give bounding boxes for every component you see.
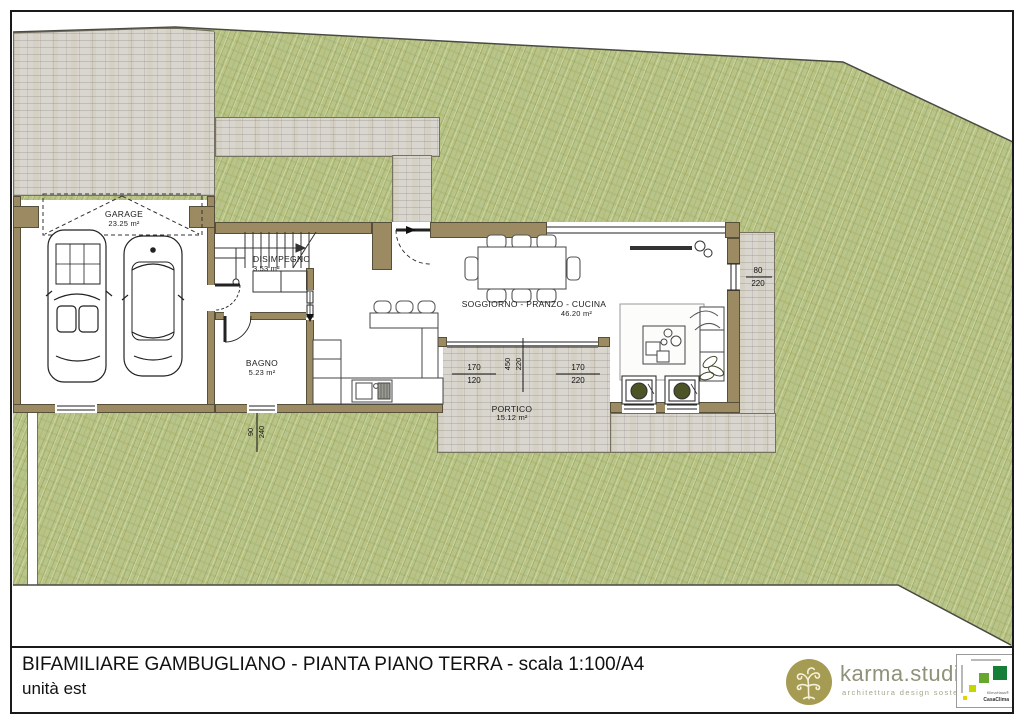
wall-living-north <box>430 222 547 238</box>
drawing-title: BIFAMILIARE GAMBUGLIANO - PIANTA PIANO T… <box>22 654 644 676</box>
window-east-gap <box>727 264 740 290</box>
title-block: BIFAMILIARE GAMBUGLIANO - PIANTA PIANO T… <box>12 646 1012 714</box>
garage-door-jamb-east <box>189 206 215 228</box>
dim-portico-east-h: 220 <box>556 376 600 385</box>
badge-microtext-top <box>971 659 1001 661</box>
drawing-subtitle: unità est <box>22 679 86 699</box>
dim-portico-west-w: 170 <box>452 363 496 372</box>
room-area: 46.20 m² <box>529 309 624 319</box>
wall-garage-west <box>13 196 21 413</box>
room-area: 5.23 m² <box>227 368 297 378</box>
path-paving-horizontal <box>215 117 440 157</box>
boundary-strip <box>27 412 38 585</box>
wall-hall-north <box>215 222 372 234</box>
badge-green-square <box>979 673 989 683</box>
badge-green-square <box>969 685 976 692</box>
room-area: 3.53 m² <box>253 264 353 274</box>
living-south-floor <box>610 345 740 403</box>
portico-pillar-west <box>435 337 447 347</box>
wall-garage-south <box>13 404 215 413</box>
floor-plan-sheet: GARAGE 23.25 m² DISIMPEGNO 3.53 m² BAGNO… <box>0 0 1024 724</box>
driveway-paving <box>13 28 215 196</box>
window-garage-gap <box>55 404 97 413</box>
portico-paving <box>437 345 611 453</box>
studio-name: karma.studio <box>840 661 972 687</box>
casaclima-badge: KlimaHaus® CasaClima <box>956 654 1014 708</box>
room-label: SOGGIORNO - PRANZO - CUCINA <box>434 299 634 309</box>
door-bath-gap <box>224 312 250 320</box>
site-plan: GARAGE 23.25 m² DISIMPEGNO 3.53 m² BAGNO… <box>0 0 1024 646</box>
room-label: GARAGE <box>79 209 169 219</box>
wall-east-upper <box>727 238 740 264</box>
room-area: 23.25 m² <box>79 219 169 229</box>
dim-bath-window-h: 240 <box>257 417 267 447</box>
wall-partition <box>306 268 314 405</box>
dim-east-window-w: 80 <box>744 266 772 275</box>
dim-east-window-h: 220 <box>744 279 772 288</box>
garage-floor <box>21 200 207 404</box>
badge-microtext-left <box>961 665 963 693</box>
pocket-door-gap <box>306 290 314 320</box>
room-label: DISIMPEGNO <box>253 254 353 264</box>
badge-text-bottom: CasaClima <box>983 697 1009 703</box>
window-south1-gap <box>622 402 656 413</box>
karma-studio-logo <box>786 659 832 705</box>
dim-portico-east-w: 170 <box>556 363 600 372</box>
pillar-northeast <box>725 222 740 238</box>
entry-pier <box>372 222 392 270</box>
window-bath-gap <box>247 404 277 413</box>
wall-east-lower <box>727 290 740 404</box>
room-area: 15.12 m² <box>477 413 547 423</box>
badge-green-square <box>993 666 1007 680</box>
tree-logo-icon <box>786 659 832 705</box>
south-paving <box>610 413 776 453</box>
window-south2-gap <box>665 402 699 413</box>
badge-yellow-square <box>963 696 967 700</box>
dim-portico-south-h: 220 <box>514 349 524 379</box>
portico-pillar-east <box>598 337 610 347</box>
room-label: BAGNO <box>227 358 297 368</box>
badge-text-top: KlimaHaus® <box>987 690 1009 695</box>
garage-door-jamb-west <box>13 206 39 228</box>
window-band-north-gap <box>547 222 725 238</box>
dim-portico-west-h: 120 <box>452 376 496 385</box>
door-garage-hall-gap <box>207 285 215 311</box>
dim-portico-south-w: 450 <box>503 349 513 379</box>
dim-bath-window-w: 90 <box>246 417 256 447</box>
entrance-path-paving <box>392 155 432 223</box>
